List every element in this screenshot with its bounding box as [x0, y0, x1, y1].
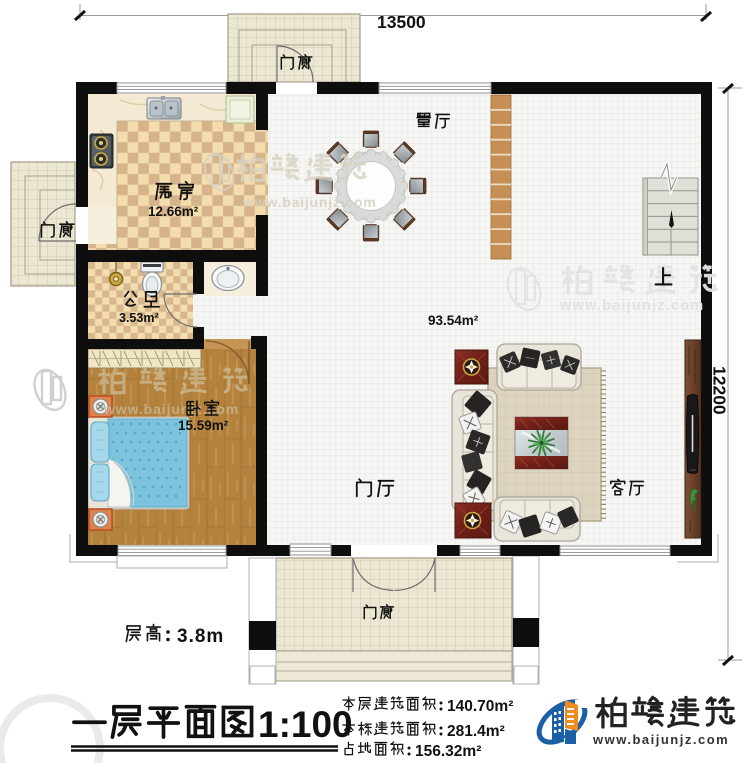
svg-text:www.baijunjz.com: www.baijunjz.com: [242, 194, 377, 210]
svg-text:156.32m²: 156.32m²: [415, 743, 481, 760]
svg-text:3.8m: 3.8m: [177, 626, 224, 647]
svg-text:13500: 13500: [377, 12, 426, 32]
svg-text:www.baijunjz.com: www.baijunjz.com: [592, 732, 729, 747]
svg-text:www.baijunjz.com: www.baijunjz.com: [559, 298, 704, 314]
svg-text:281.4m²: 281.4m²: [447, 723, 505, 740]
svg-text:93.54m²: 93.54m²: [428, 313, 479, 328]
svg-text:15.59m²: 15.59m²: [178, 418, 229, 433]
svg-text:1:100: 1:100: [258, 704, 353, 745]
svg-text:3.53m²: 3.53m²: [119, 311, 159, 325]
svg-text:12200: 12200: [710, 366, 730, 415]
svg-text:140.70m²: 140.70m²: [447, 698, 513, 715]
svg-text:12.66m²: 12.66m²: [148, 204, 199, 219]
